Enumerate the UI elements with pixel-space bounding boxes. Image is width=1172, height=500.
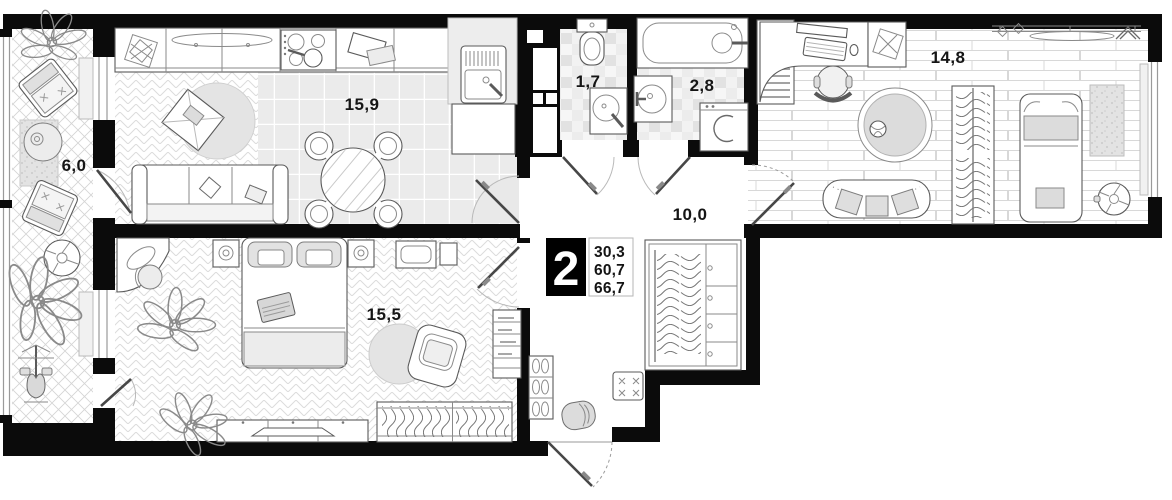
door-wc: [563, 157, 614, 195]
window-living: [79, 57, 107, 120]
toilet: [577, 19, 607, 65]
window-bedroom-right: [1140, 62, 1158, 197]
single-bed: [1020, 94, 1082, 222]
ball: [870, 121, 886, 137]
desk-cabinet: [868, 22, 906, 67]
washing-machine: [700, 103, 748, 151]
door-bathroom: [638, 157, 690, 195]
pouf: [560, 399, 597, 431]
bed-pillow-band: [1024, 116, 1078, 140]
area-living: 30,3: [594, 244, 625, 261]
tv-stand: [217, 420, 368, 442]
door-entrance: [548, 442, 612, 487]
kitchen-sink: [448, 18, 517, 104]
rooms-count: 2: [553, 243, 580, 296]
bedroom-bookshelf: [493, 310, 521, 378]
vanity-stool: [138, 265, 162, 289]
wc-sink: [590, 88, 627, 134]
nightstand-right: [348, 240, 374, 267]
room-label-hallway: 10,0: [673, 205, 708, 224]
hall-wardrobe: [645, 240, 741, 370]
blanket: [244, 332, 345, 366]
room-label-wc: 1,7: [576, 72, 601, 91]
floor-plan-page: 2 30,3 60,7 66,7 6,0 15,9 1,7 2,8 14,8 1…: [0, 0, 1172, 500]
area-main: 60,7: [594, 262, 625, 279]
room-label-bedroom: 15,5: [367, 305, 402, 324]
bedroom-dresser: [396, 241, 457, 268]
room-label-bedroom-right: 14,8: [931, 48, 966, 67]
textured-rug: [1090, 85, 1124, 156]
room-label-kitchen-living: 15,9: [345, 95, 380, 114]
sofa: [132, 165, 288, 224]
double-bed: [242, 238, 347, 368]
area-badge: 2 30,3 60,7 66,7: [546, 238, 633, 297]
floor-plan: 2 30,3 60,7 66,7 6,0 15,9 1,7 2,8 14,8 1…: [0, 0, 1172, 500]
right-room-rug: [858, 88, 932, 162]
doormat: [613, 372, 643, 400]
bath-sink: [634, 76, 672, 122]
balcony-glazing: [0, 29, 12, 423]
curved-bench: [823, 180, 930, 218]
window-bedroom: [79, 290, 107, 358]
kitchen-counter-cabinet: [452, 104, 515, 154]
area-total: 66,7: [594, 280, 625, 297]
shoe-rack: [529, 356, 553, 419]
nightstand-left: [213, 240, 239, 267]
bathtub: [637, 18, 748, 68]
balcony-table: [24, 123, 62, 161]
clothes-rack: [952, 86, 994, 224]
room-label-balcony: 6,0: [62, 156, 87, 175]
balcony-fan: [44, 240, 80, 276]
room-label-bathroom: 2,8: [690, 76, 715, 95]
bedroom-wardrobe: [377, 402, 512, 442]
tv: [252, 428, 334, 436]
mouse: [850, 45, 858, 56]
